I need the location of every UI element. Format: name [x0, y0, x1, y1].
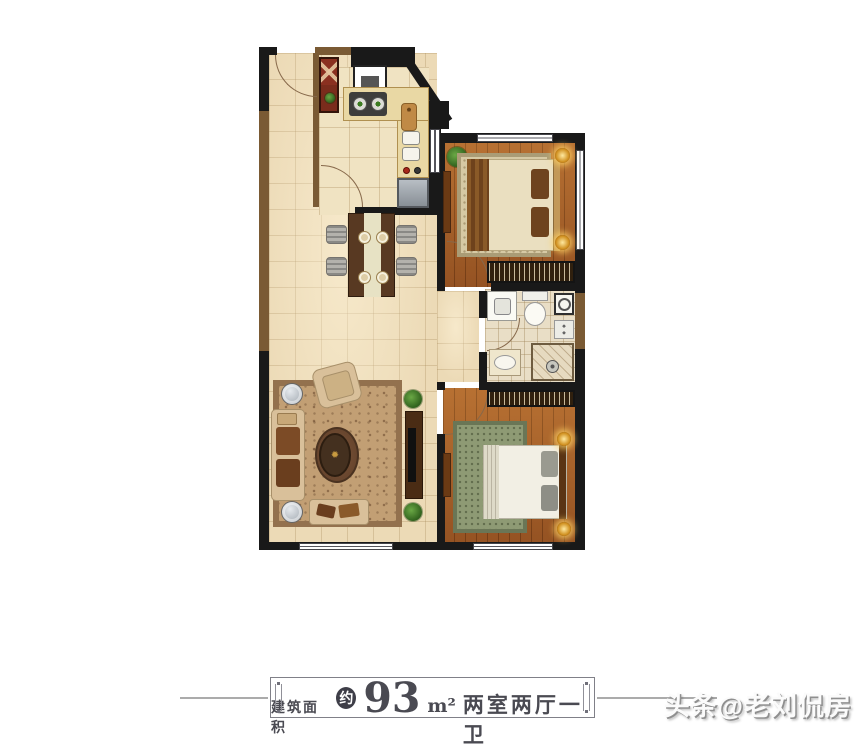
wall-mid-left: [437, 283, 445, 291]
place-setting: [358, 271, 371, 284]
place-setting: [376, 271, 389, 284]
side-table: [281, 501, 303, 523]
label-end-ornament: [583, 684, 590, 711]
bathroom-vanity: [487, 291, 517, 321]
wall-top-shoe: [315, 47, 353, 55]
dining-chair: [396, 257, 417, 276]
pillow: [531, 207, 549, 237]
kitchen-jar: [414, 167, 421, 174]
bedroom-top-bench: [443, 171, 451, 233]
wall-bath-left-lower: [479, 352, 487, 383]
sink-basin: [402, 147, 420, 161]
shoe-cabinet-plant: [325, 93, 335, 103]
bathroom-shelf: [554, 320, 574, 339]
floor-plan: ✦ ✹: [255, 45, 585, 555]
sofa-pillow: [277, 413, 297, 425]
wall-mid-right: [491, 283, 585, 291]
approx-badge: 约: [336, 687, 356, 709]
wash-basin: [489, 349, 521, 376]
wall-top-entry: [259, 47, 277, 55]
wall-left-middle: [259, 111, 269, 351]
sofa-cushion: [276, 459, 300, 487]
bed-blanket: [467, 159, 489, 251]
bedroom-bottom-bench: [443, 453, 451, 497]
wardrobe-bedroom-bottom: [487, 390, 575, 407]
window-bedroom-bottom: [473, 543, 553, 550]
wall-bedbot-left-stub: [437, 382, 445, 390]
wall-left-top: [259, 47, 269, 111]
dining-chair: [396, 225, 417, 244]
nightstand-lamp: [557, 522, 571, 536]
bed-headboard: [559, 445, 566, 519]
dining-table-runner: [364, 213, 381, 297]
wardrobe-bedroom-top: [487, 261, 575, 283]
dining-chair: [326, 225, 347, 244]
washer-drum: [558, 298, 571, 311]
place-setting: [376, 231, 389, 244]
window-bedroom-top: [477, 134, 553, 142]
armchair-cushion: [321, 370, 355, 402]
plant: [404, 503, 422, 521]
window-kitchen: [430, 129, 440, 173]
nightstand-lamp: [555, 148, 570, 163]
bench-item: [338, 503, 360, 519]
tv: [408, 428, 416, 482]
refrigerator: [397, 178, 429, 208]
stove-burner: [371, 97, 385, 111]
kitchen-jar: [403, 167, 410, 174]
pillow: [541, 451, 558, 477]
basin-bowl: [494, 355, 516, 370]
nightstand-lamp: [555, 235, 570, 250]
wall-left-bottom: [259, 351, 269, 550]
layout-text: 两室两厅一卫: [463, 689, 594, 749]
toilet-tank: [522, 291, 548, 301]
area-label-box: 建筑面积 约 93 m² 两室两厅一卫: [270, 677, 595, 718]
pillow: [531, 169, 549, 199]
sink-basin: [402, 131, 420, 145]
area-value: 93: [363, 678, 420, 719]
vanity-sink: [494, 298, 511, 315]
hall-branch-floor: [437, 291, 479, 382]
plant: [404, 390, 422, 408]
wall-bath-bottom: [479, 382, 585, 390]
toilet-bowl: [524, 302, 546, 326]
window-living-room: [299, 543, 393, 550]
wall-bath-left-upper: [479, 291, 487, 318]
shoe-cabinet: [319, 57, 339, 113]
side-table: [281, 383, 303, 405]
sofa-cushion: [276, 427, 300, 455]
washing-machine: [554, 293, 574, 315]
pillow: [541, 485, 558, 511]
bed-blanket-fold: [483, 445, 499, 519]
wall-right-niche: [575, 293, 585, 349]
caption-rule-left: [180, 697, 268, 699]
cutting-board: [401, 103, 417, 131]
coffee-table: ✹: [319, 433, 351, 477]
watermark: 头条@老刘侃房: [640, 686, 852, 723]
label-end-ornament: [275, 684, 282, 711]
stove-burner: [353, 97, 367, 111]
shoe-cabinet-top: [321, 59, 337, 85]
place-setting: [358, 231, 371, 244]
shower-head: [546, 360, 559, 373]
nightstand-lamp: [557, 432, 571, 446]
area-unit: m²: [427, 695, 455, 717]
dining-chair: [326, 257, 347, 276]
window-bedroom-right: [576, 150, 584, 250]
